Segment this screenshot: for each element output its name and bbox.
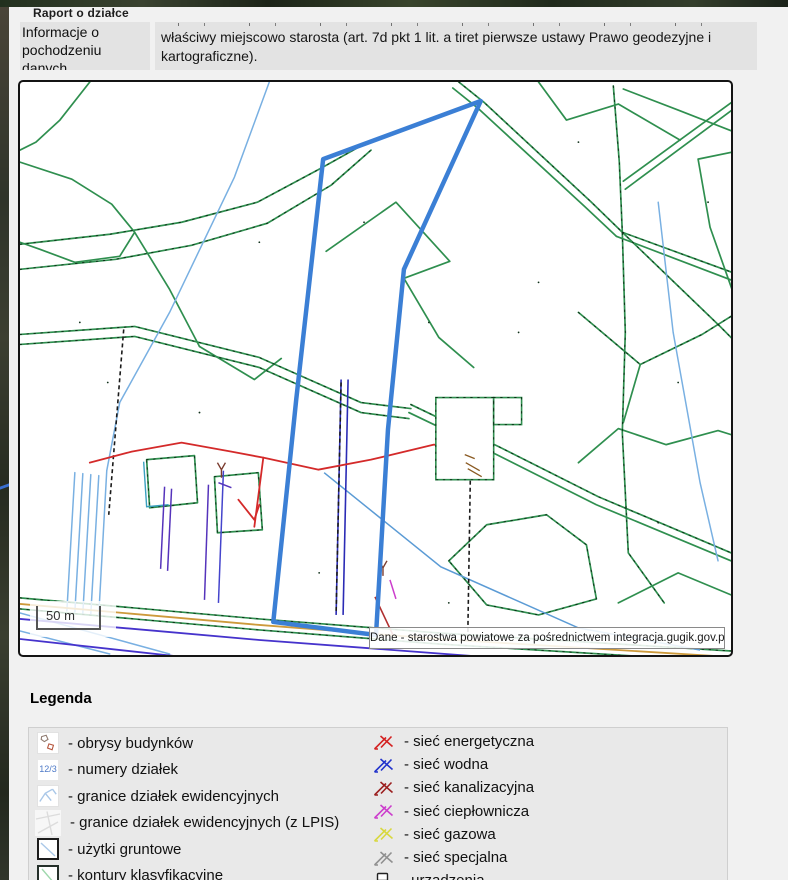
legend-item-parcel-numbers: 12/3 - numery działek <box>37 757 367 784</box>
parcel-boundaries-lpis-icon <box>35 810 61 836</box>
legend-item-water-network: - sieć wodna <box>373 753 723 776</box>
legend-label: - sieć energetyczna <box>404 733 534 750</box>
legend-label: - kontury klasyfikacyjne <box>68 867 223 880</box>
legend-item-special-network: - sieć specjalna <box>373 846 723 869</box>
heat-line-fragment <box>390 580 396 599</box>
dashed-utility-line <box>468 453 471 639</box>
legend-right-column: - sieć energetyczna - sieć wodna - sieć … <box>373 730 723 880</box>
special-network-icon <box>373 849 395 867</box>
scale-bar: 50 m <box>30 601 116 637</box>
purple-utility-line <box>161 487 165 569</box>
legend-item-classification-contours: - kontury klasyfikacyjne <box>37 863 367 880</box>
info-origin-text-value: właściwy miejscowo starosta (art. 7d pkt… <box>161 29 711 64</box>
legend-label: - numery działek <box>68 761 178 778</box>
water-network-lines <box>20 82 718 654</box>
devices-icon <box>373 871 393 880</box>
dialog-title: Raport o działce <box>33 6 129 20</box>
legend-label: - granice działek ewidencyjnych <box>68 788 279 805</box>
legend-label: - użytki gruntowe <box>68 841 181 858</box>
legend-label: - sieć gazowa <box>404 826 496 843</box>
building-outlines-icon <box>37 732 59 754</box>
map-viewport[interactable]: 50 m Dane - starostwa powiatowe za pośre… <box>18 80 733 657</box>
land-use-icon <box>37 838 59 860</box>
purple-utility-line <box>168 489 172 571</box>
legend-label: - sieć kanalizacyjna <box>404 779 534 796</box>
legend-item-sewer-network: - sieć kanalizacyjna <box>373 776 723 799</box>
purple-utility-line <box>218 471 223 603</box>
legend-item-gas-network: - sieć gazowa <box>373 823 723 846</box>
scale-bar-label: 50 m <box>46 608 75 623</box>
building-footprints <box>436 398 522 480</box>
map-canvas[interactable] <box>20 82 731 655</box>
heating-network-icon <box>373 802 395 820</box>
clipped-text-line <box>161 23 721 26</box>
map-attribution: Dane - starostwa powiatowe za pośrednict… <box>369 627 725 649</box>
legend-label: - granice działek ewidencyjnych (z LPIS) <box>70 814 339 831</box>
parcel-boundary-network <box>20 82 731 655</box>
aerial-line-fragment <box>0 483 9 489</box>
legend-label: - urzadzenia <box>402 872 485 880</box>
legend-item-parcel-boundaries-lpis: - granice działek ewidencyjnych (z LPIS) <box>37 810 367 837</box>
dashed-utility-line <box>109 329 124 514</box>
legend-item-devices: - urzadzenia <box>373 869 723 880</box>
power-network-icon <box>373 733 395 751</box>
water-network-icon <box>373 756 395 774</box>
sewer-network-icon <box>373 779 395 797</box>
info-origin-text: właściwy miejscowo starosta (art. 7d pkt… <box>155 22 757 70</box>
parcel-boundaries-icon <box>37 785 59 807</box>
purple-utility-line <box>204 485 208 600</box>
legend-label: - sieć ciepłownicza <box>404 803 529 820</box>
selected-parcel-outline[interactable] <box>273 101 480 635</box>
legend-label: - sieć wodna <box>404 756 488 773</box>
gas-network-icon <box>373 825 395 843</box>
purple-utility-tick <box>218 483 231 488</box>
classification-contours-icon <box>37 865 59 880</box>
legend-item-power-network: - sieć energetyczna <box>373 730 723 753</box>
legend-left-column: - obrysy budynków 12/3 - numery działek … <box>37 730 367 880</box>
legend-label: - obrysy budynków <box>68 735 193 752</box>
legend-item-land-use: - użytki gruntowe <box>37 836 367 863</box>
legend-label: - sieć specjalna <box>404 849 507 866</box>
parcel-numbers-icon: 12/3 <box>37 759 59 781</box>
legend-item-heating-network: - sieć ciepłownicza <box>373 800 723 823</box>
legend-item-parcel-boundaries: - granice działek ewidencyjnych <box>37 783 367 810</box>
aerial-background-left <box>0 7 9 880</box>
info-origin-label: Informacje o pochodzeniu danych <box>20 22 150 70</box>
legend-heading: Legenda <box>30 690 92 707</box>
legend-panel: - obrysy budynków 12/3 - numery działek … <box>28 727 728 880</box>
legend-item-building-outlines: - obrysy budynków <box>37 730 367 757</box>
report-dialog: Raport o działce Informacje o pochodzeni… <box>0 0 788 880</box>
